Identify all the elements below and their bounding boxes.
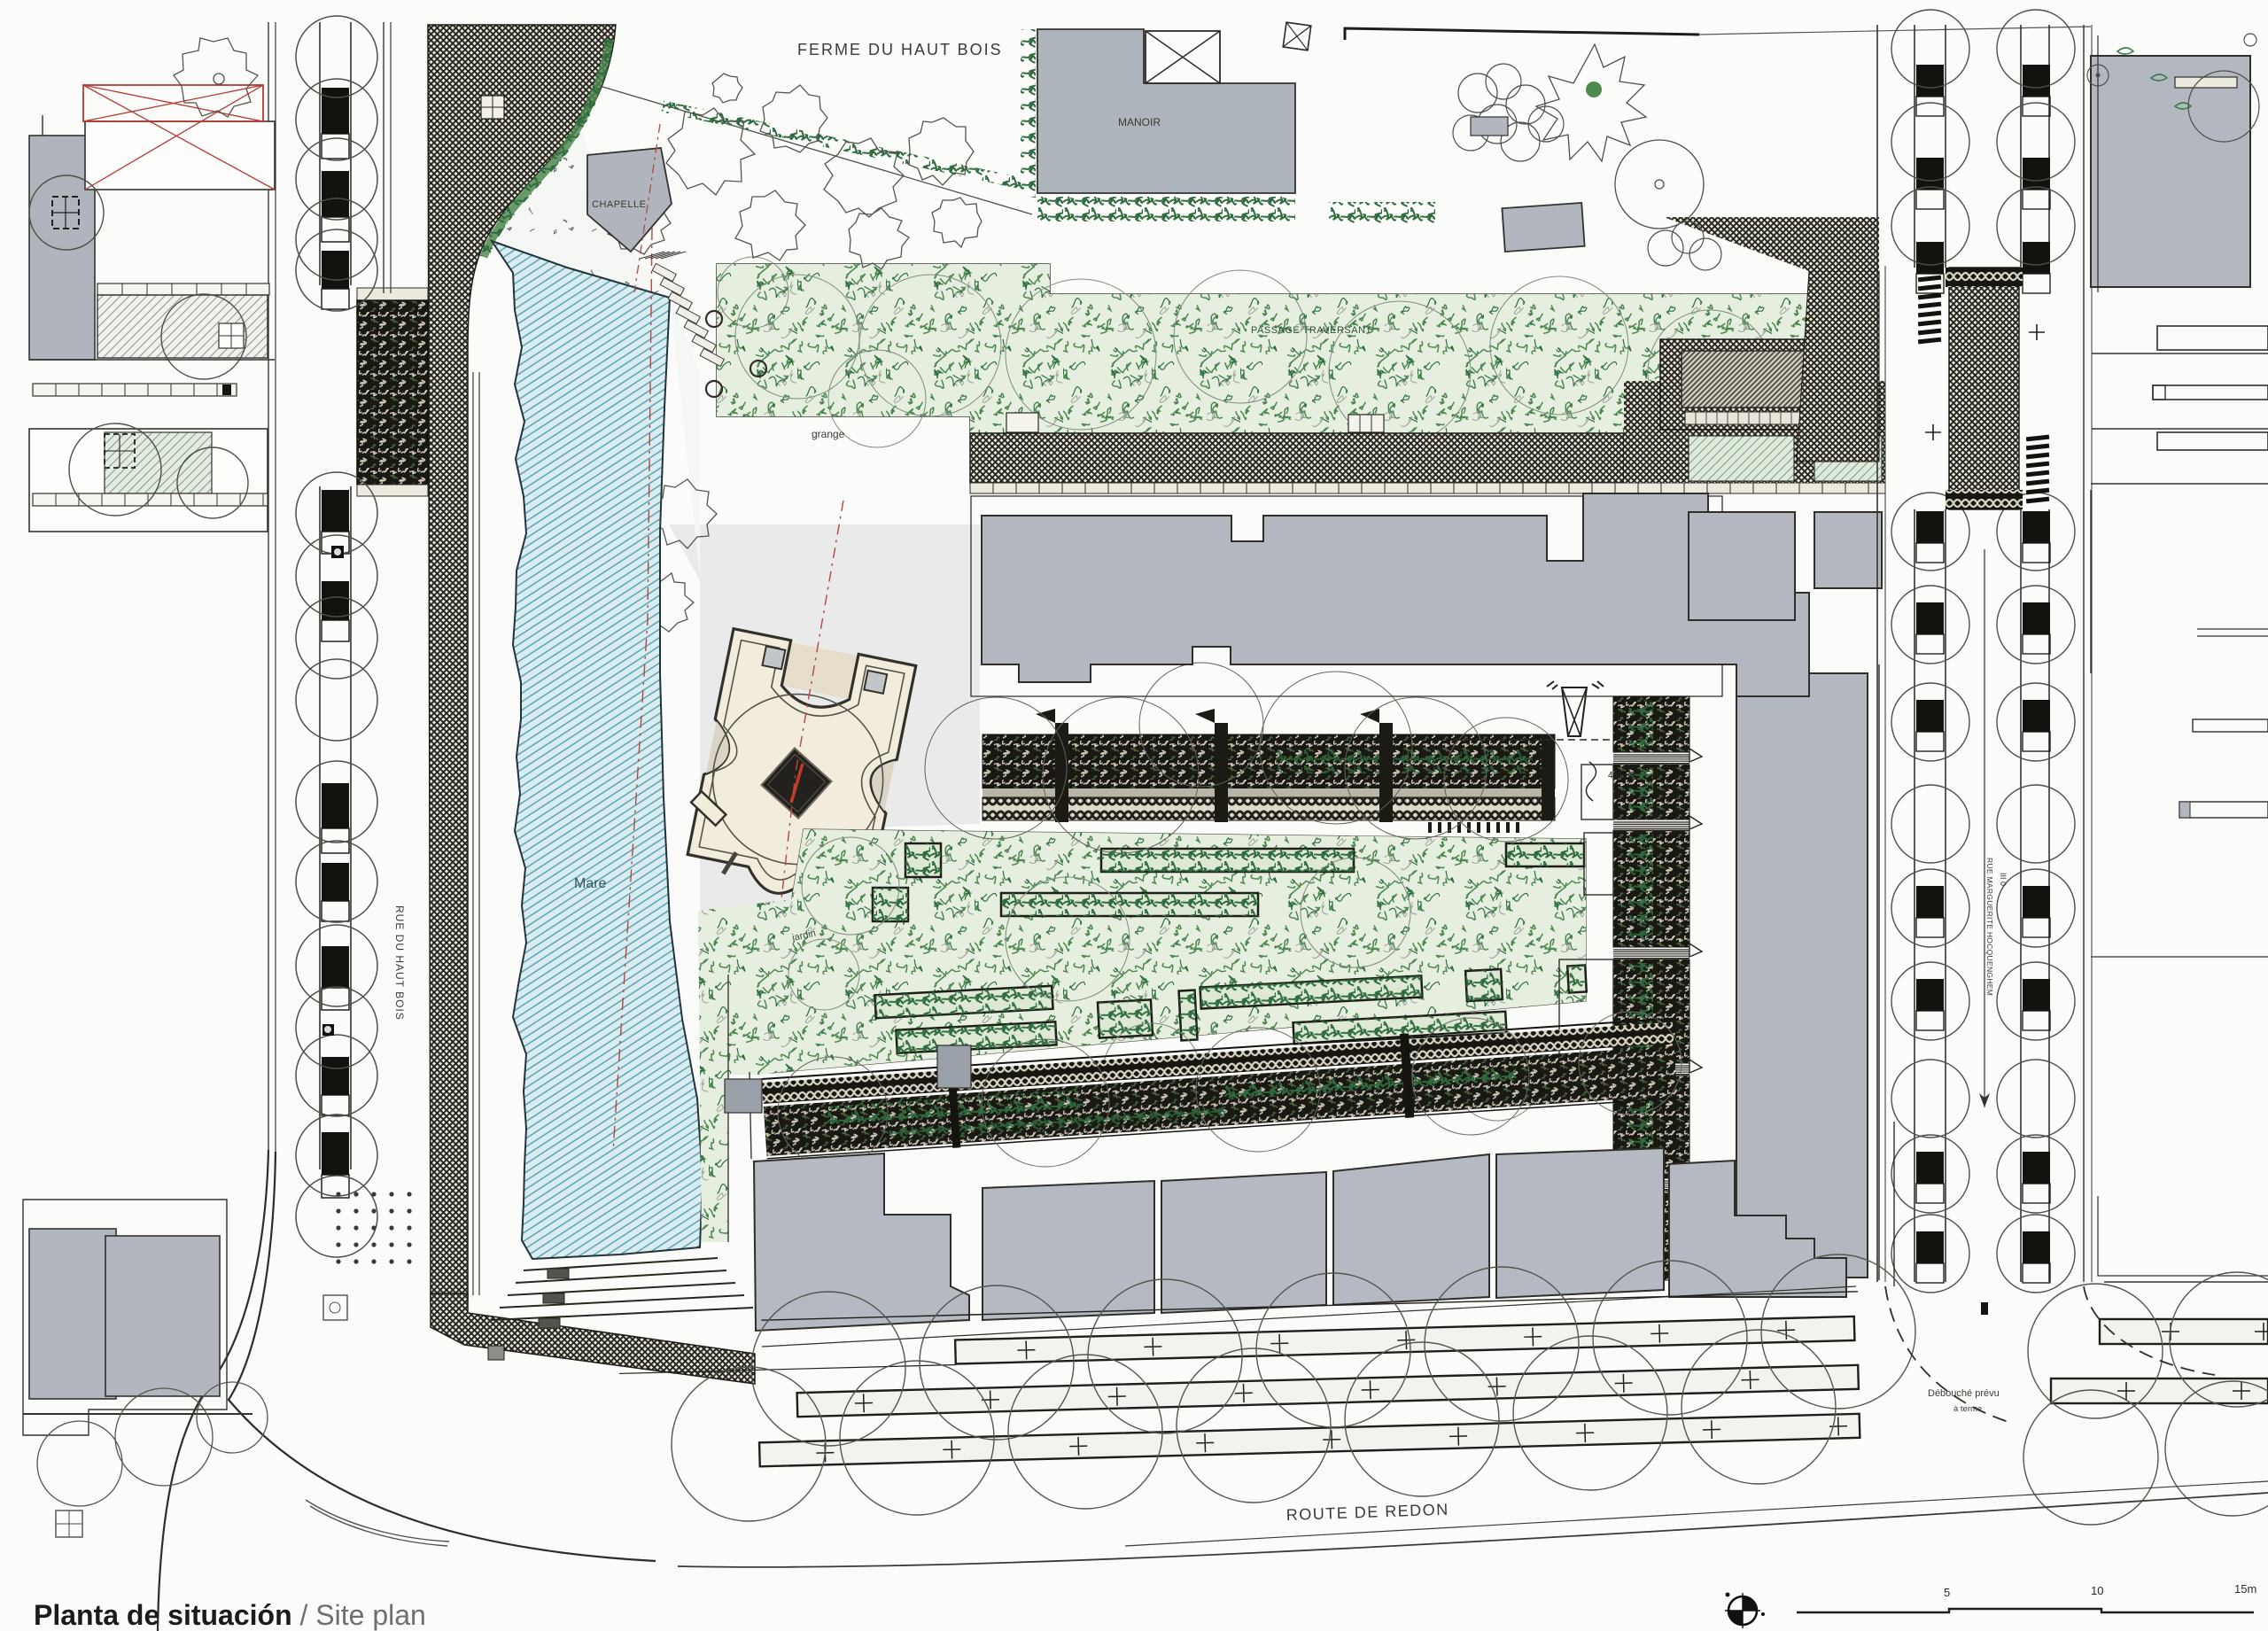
svg-text:grange: grange [812,428,845,440]
svg-text:Planta de situación / Site pla: Planta de situación / Site plan [34,1599,426,1631]
svg-text:III 0: III 0 [1999,873,2008,886]
svg-text:Mare: Mare [574,876,607,891]
svg-text:MANOIR: MANOIR [1118,116,1161,128]
svg-text:Débouché prévu: Débouché prévu [1928,1388,2000,1399]
svg-text:CHAPELLE: CHAPELLE [592,199,646,210]
svg-text:RUE MARGUERITE HOCQUENGHEM: RUE MARGUERITE HOCQUENGHEM [1985,858,1994,996]
svg-text:15m: 15m [2234,1582,2256,1596]
svg-text:445.80: 445.80 [1608,771,1635,781]
svg-text:FERME DU HAUT BOIS: FERME DU HAUT BOIS [797,41,1003,58]
svg-text:à terme: à terme [1953,1404,1982,1414]
svg-text:PASSAGE TRAVERSANT: PASSAGE TRAVERSANT [1251,325,1372,336]
svg-text:10: 10 [2091,1584,2103,1597]
svg-text:5: 5 [1944,1586,1950,1599]
svg-text:RUE DU HAUT BOIS: RUE DU HAUT BOIS [393,905,406,1021]
